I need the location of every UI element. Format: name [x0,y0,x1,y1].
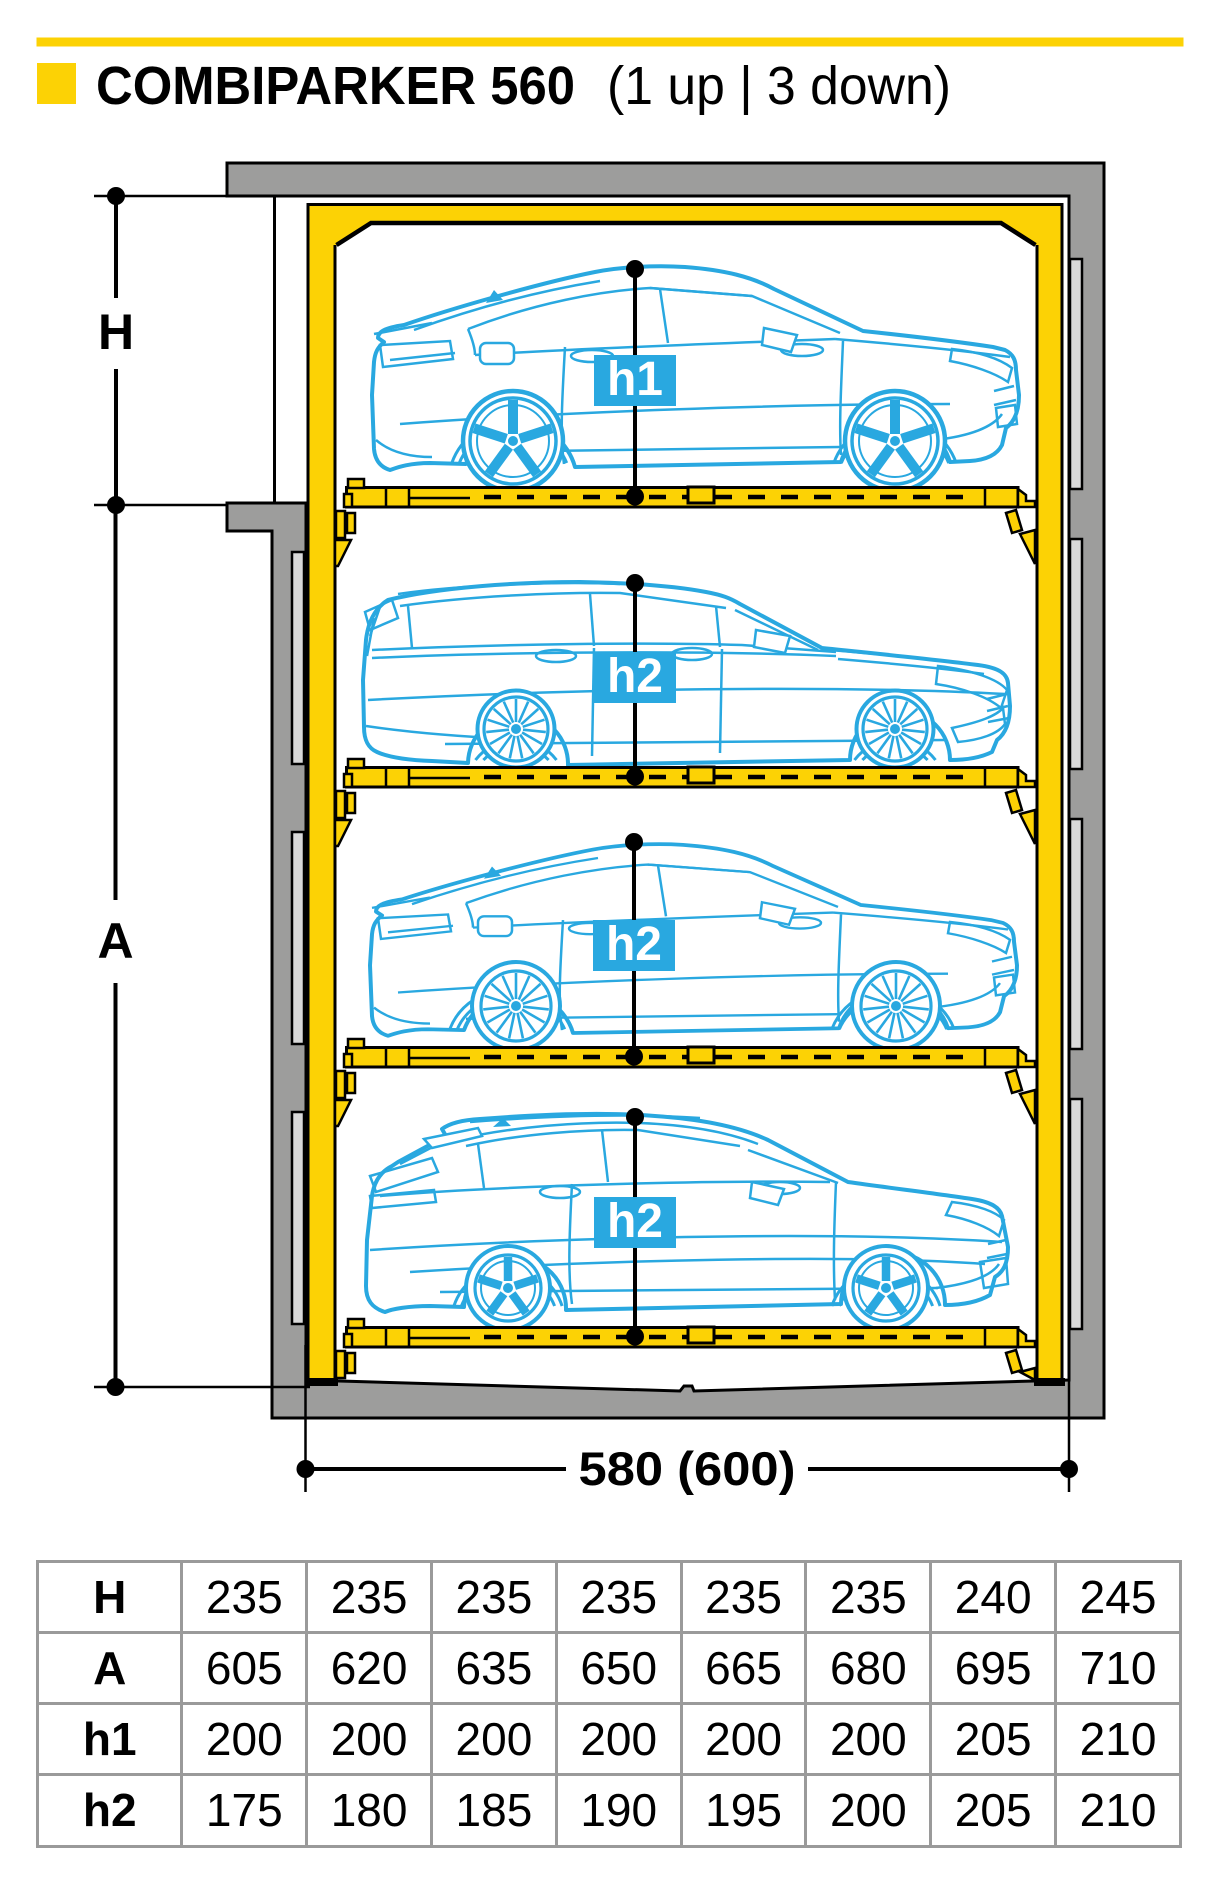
svg-text:h2: h2 [607,650,663,703]
svg-text:COMBIPARKER 560: COMBIPARKER 560 [96,56,575,116]
svg-text:h2: h2 [606,918,662,971]
svg-text:(1 up | 3 down): (1 up | 3 down) [607,56,951,116]
svg-text:A: A [97,913,133,969]
svg-text:h1: h1 [607,353,663,406]
svg-text:H: H [98,304,134,360]
svg-text:h2: h2 [607,1195,663,1248]
svg-text:580 (600): 580 (600) [579,1442,796,1495]
